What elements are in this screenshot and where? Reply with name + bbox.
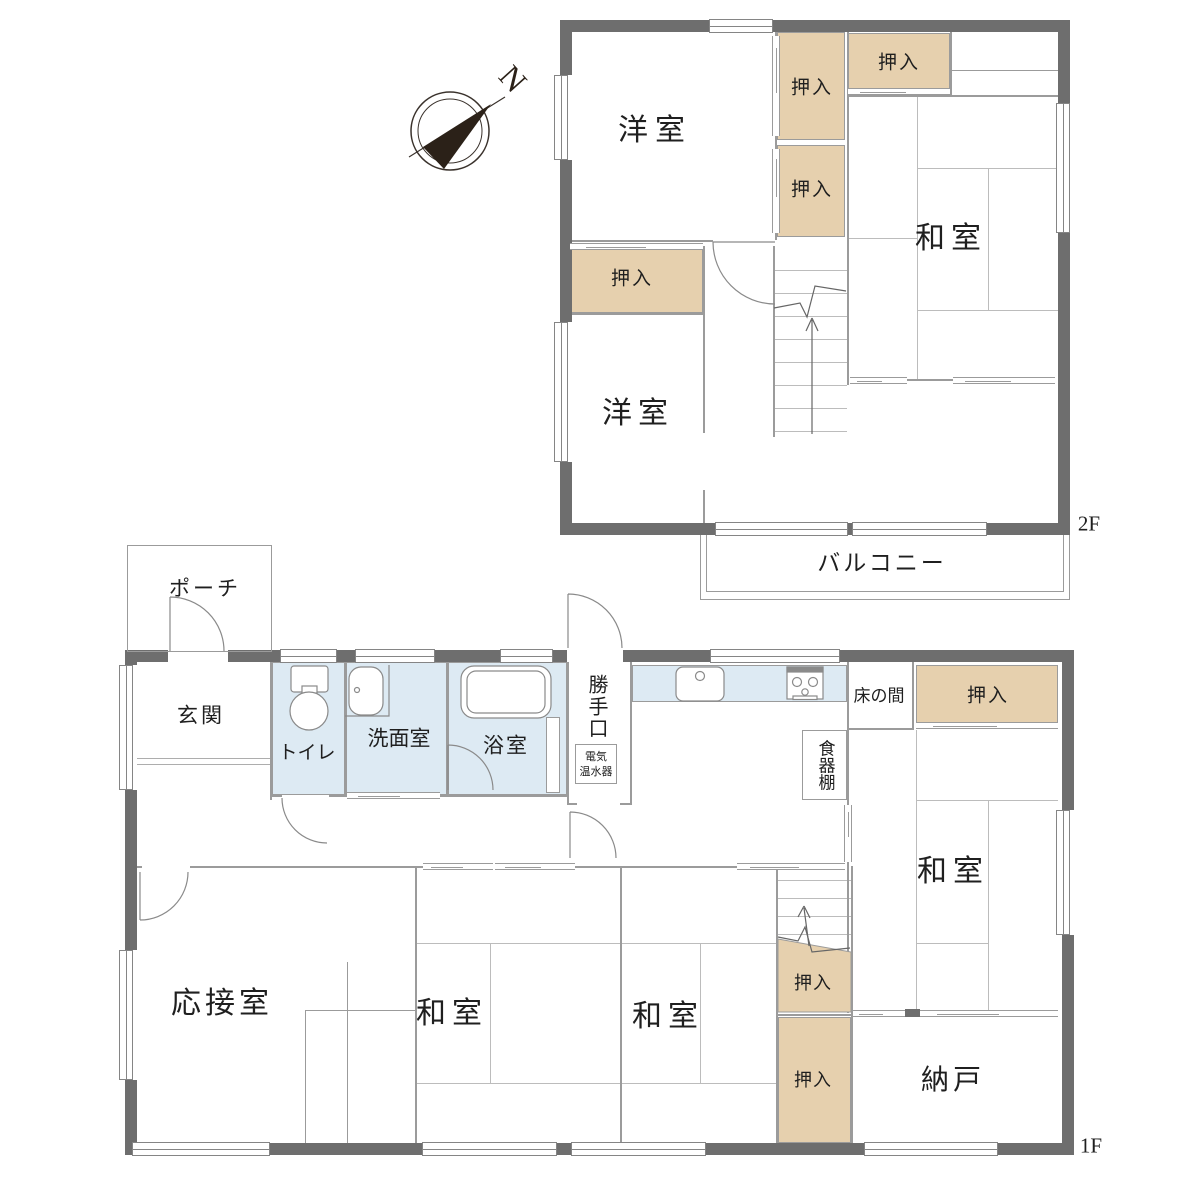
door-arc xyxy=(170,597,224,651)
entrance-label: 玄関 xyxy=(177,706,225,727)
stove-icon xyxy=(793,678,802,687)
room-label-closet: 押入 xyxy=(794,1071,832,1089)
water-heater-label: 電気 xyxy=(576,750,616,765)
bathroom-label: 浴室 xyxy=(483,736,529,757)
room-label-closet: 押入 xyxy=(794,974,832,992)
room-label-japanese-room: 和室 xyxy=(917,857,989,887)
door-arc xyxy=(713,242,775,304)
cupboard-label: 食器棚 xyxy=(817,740,834,791)
floor-label-2f: 2F xyxy=(1078,514,1100,535)
toilet-icon xyxy=(290,692,328,730)
floor-plan: N 洋室 押入 押入 押入 和室 押入 洋室 バルコニー 2F ポーチ 玄関 ト… xyxy=(0,0,1200,1200)
stove-icon xyxy=(787,667,823,672)
stove-icon xyxy=(793,696,817,700)
room-label-closet: 押入 xyxy=(878,54,920,73)
compass-icon: N xyxy=(409,58,534,170)
door-arc xyxy=(140,872,188,920)
balcony-label: バルコニー xyxy=(817,552,947,575)
door-arc xyxy=(568,594,622,648)
door-arc xyxy=(282,798,327,843)
kitchen-sink-icon xyxy=(696,672,705,681)
stairs-break-line xyxy=(774,286,846,317)
room-label-japanese-room: 和室 xyxy=(632,1002,704,1032)
toilet-label: トイレ xyxy=(278,744,335,763)
room-label-japanese-room: 和室 xyxy=(416,999,488,1029)
stairs-up-arrow xyxy=(806,318,818,434)
porch-label: ポーチ xyxy=(169,579,241,600)
water-heater-box: 電気 温水器 xyxy=(575,744,617,784)
back-door-label: 勝手口 xyxy=(586,674,606,740)
room-label-western-room: 洋室 xyxy=(618,116,692,146)
floor-label-1f: 1F xyxy=(1080,1136,1102,1157)
reception-room-label: 応接室 xyxy=(171,989,273,1019)
compass-north-label: N xyxy=(492,58,534,99)
washroom-label: 洗面室 xyxy=(368,729,431,750)
washbasin-icon xyxy=(355,688,360,693)
stove-icon xyxy=(809,678,818,687)
room-label-closet: 押入 xyxy=(791,79,833,98)
door-arc xyxy=(570,812,616,858)
bathtub-icon xyxy=(461,666,551,718)
room-label-western-room: 洋室 xyxy=(602,399,674,429)
tokonoma-label: 床の間 xyxy=(854,688,905,705)
storage-room-label: 納戸 xyxy=(921,1067,985,1095)
room-label-closet: 押入 xyxy=(611,270,653,289)
room-label-closet: 押入 xyxy=(967,687,1009,706)
stove-icon xyxy=(802,689,808,695)
water-heater-label: 温水器 xyxy=(576,765,616,780)
room-label-closet: 押入 xyxy=(791,181,833,200)
room-label-japanese-room: 和室 xyxy=(915,224,987,254)
